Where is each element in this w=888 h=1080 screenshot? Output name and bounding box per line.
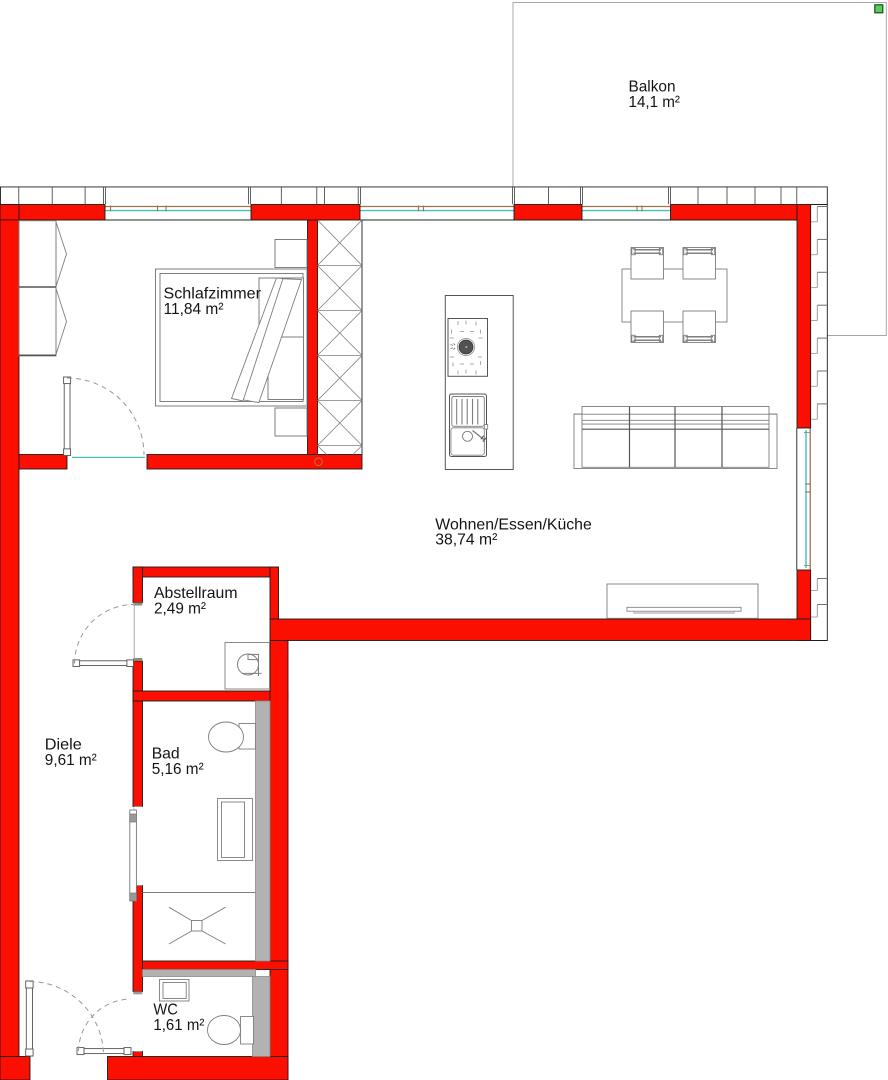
svg-text:11,84 m²: 11,84 m² bbox=[164, 301, 225, 318]
svg-text:5,16 m²: 5,16 m² bbox=[152, 761, 205, 778]
svg-text:1,61 m²: 1,61 m² bbox=[153, 1017, 205, 1034]
svg-text:Abstellraum: Abstellraum bbox=[154, 585, 238, 602]
svg-text:Schlafzimmer: Schlafzimmer bbox=[164, 285, 262, 302]
svg-text:14,1 m²: 14,1 m² bbox=[629, 94, 681, 111]
svg-text:38,74 m²: 38,74 m² bbox=[435, 532, 498, 549]
svg-text:Diele: Diele bbox=[45, 736, 82, 753]
svg-text:Balkon: Balkon bbox=[629, 79, 676, 96]
svg-text:WC: WC bbox=[153, 1002, 178, 1019]
svg-text:2,49 m²: 2,49 m² bbox=[154, 601, 207, 618]
svg-text:9,61 m²: 9,61 m² bbox=[45, 752, 98, 769]
svg-text:Bad: Bad bbox=[152, 746, 180, 763]
